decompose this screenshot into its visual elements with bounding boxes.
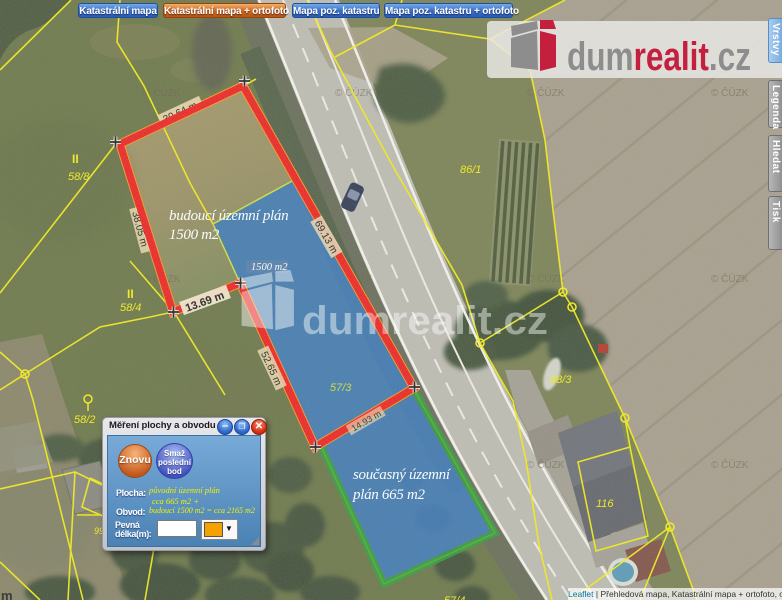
svg-text:plán 665 m2: plán 665 m2 (352, 487, 426, 503)
svg-text:© ČÚZK: © ČÚZK (711, 86, 749, 99)
svg-text:budoucí územní plán: budoucí územní plán (169, 208, 288, 224)
svg-text:© ČÚZK: © ČÚZK (527, 272, 565, 285)
svg-text:1500 m2: 1500 m2 (169, 227, 220, 243)
svg-text:m: m (1, 588, 13, 600)
svg-text:II: II (127, 287, 134, 301)
svg-text:© ČÚZK: © ČÚZK (527, 458, 565, 471)
svg-text:© ČÚZK: © ČÚZK (711, 272, 749, 285)
svg-text:© ČÚZK: © ČÚZK (335, 86, 373, 99)
svg-text:současný územní: současný územní (353, 467, 452, 483)
svg-text:58/2: 58/2 (74, 414, 95, 426)
svg-text:II: II (72, 152, 79, 166)
svg-text:58/8: 58/8 (68, 171, 90, 183)
svg-text:116: 116 (596, 498, 614, 510)
svg-text:© ČÚZK: © ČÚZK (711, 458, 749, 471)
svg-text:© ČÚZK: © ČÚZK (527, 86, 565, 99)
svg-text:57/4: 57/4 (444, 595, 465, 600)
svg-text:dumrealit.cz: dumrealit.cz (302, 299, 548, 343)
svg-text:88/3: 88/3 (550, 374, 572, 386)
svg-text:58/4: 58/4 (120, 302, 141, 314)
svg-text:57/3: 57/3 (330, 382, 352, 394)
svg-text:86/1: 86/1 (460, 164, 481, 176)
svg-text:dumrealit.cz: dumrealit.cz (567, 35, 751, 79)
